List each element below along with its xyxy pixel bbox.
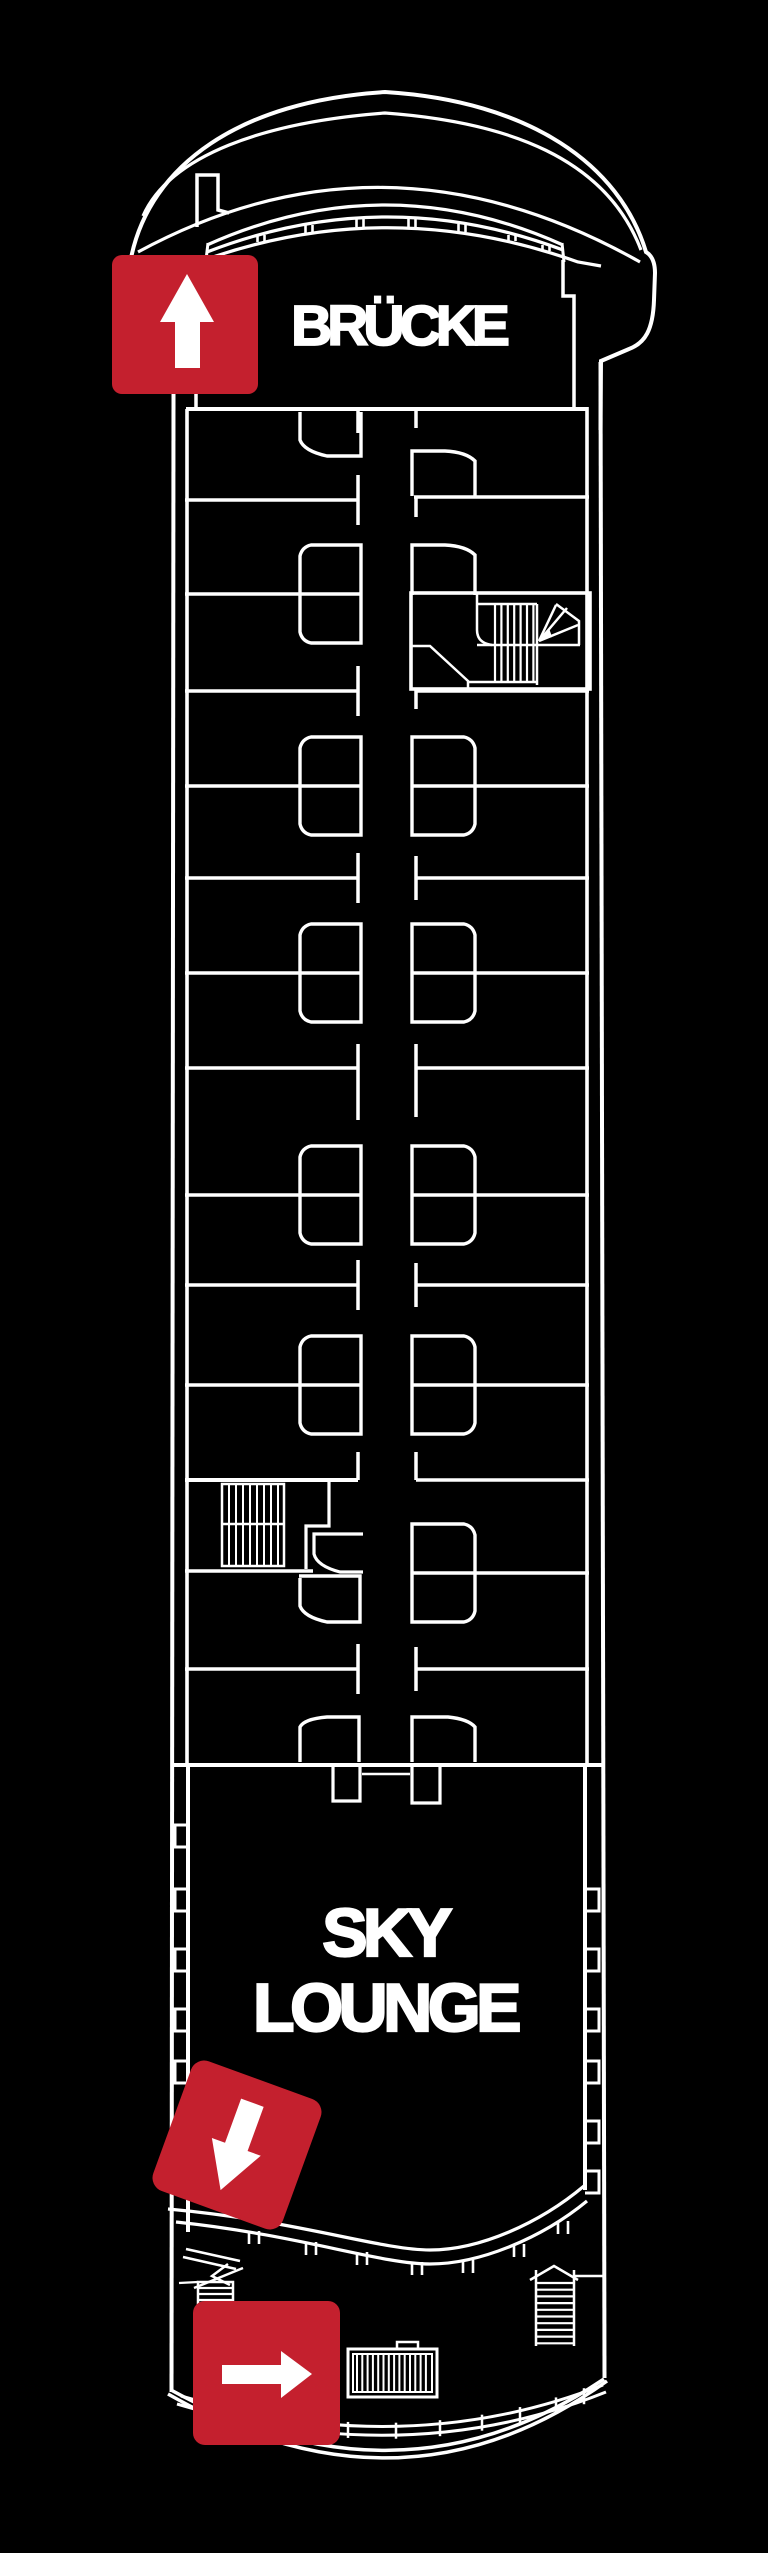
svg-text:SKY: SKY bbox=[322, 1895, 452, 1971]
svg-text:BRÜCKE: BRÜCKE bbox=[291, 294, 508, 358]
svg-text:LOUNGE: LOUNGE bbox=[253, 1970, 519, 2046]
